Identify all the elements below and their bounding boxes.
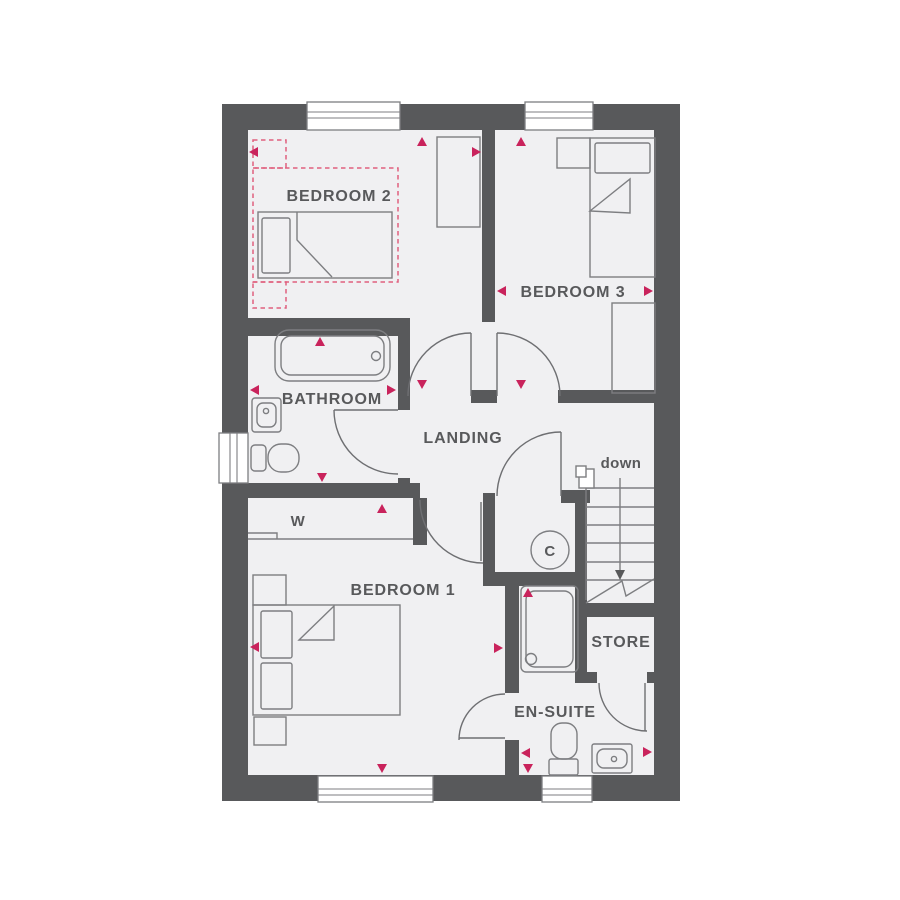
window-bedroom2 [307,102,400,130]
floor-plan-drawing: BEDROOM 2 BEDROOM 3 BATHROOM LANDING dow… [0,0,900,900]
window-bedroom3 [525,102,593,130]
room-label-bedroom1: BEDROOM 1 [351,582,456,599]
window-bedroom1 [318,776,433,802]
window-bathroom [219,433,248,483]
window-ensuite [542,776,592,802]
room-label-bathroom: BATHROOM [282,391,382,408]
wardrobe-label: W [291,513,306,530]
room-label-bedroom2: BEDROOM 2 [287,188,392,205]
outer-walls [222,104,680,801]
room-label-landing: LANDING [423,430,502,447]
room-label-ensuite: EN-SUITE [514,704,596,721]
room-label-store: STORE [591,634,650,651]
floor-plan: BEDROOM 2 BEDROOM 3 BATHROOM LANDING dow… [0,0,900,900]
cupboard-label: C [544,543,555,560]
stairs-direction-label: down [601,455,642,472]
room-label-bedroom3: BEDROOM 3 [521,284,626,301]
stairs-newel-post [576,466,594,488]
